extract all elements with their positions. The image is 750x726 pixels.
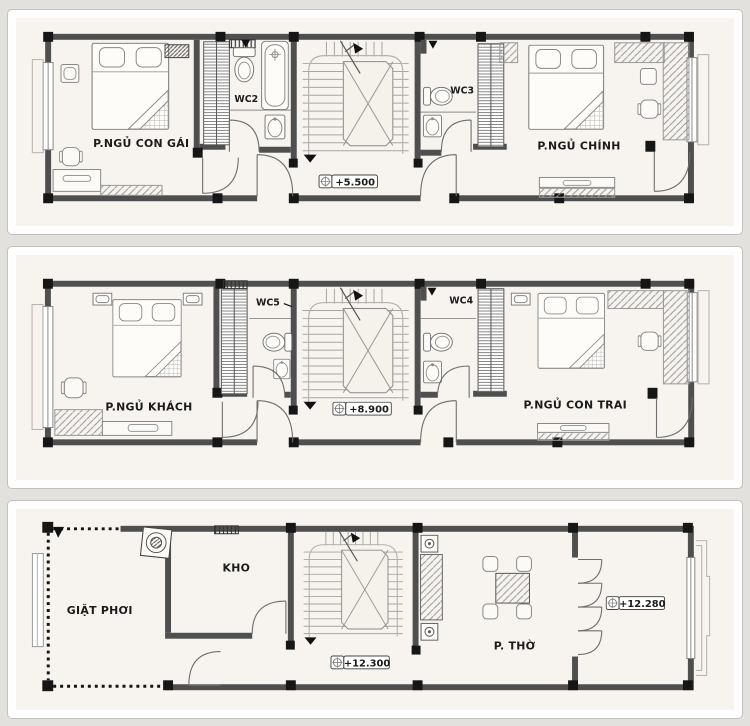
plan2-elevation-value: +8.900 xyxy=(349,405,389,416)
plan3-elevation-value: +12.300 xyxy=(344,658,391,669)
plan3-storage-label: KHO xyxy=(223,561,251,574)
plan1-elevation-marker: +5.500 xyxy=(319,175,377,188)
plan3-paper: GIẶT PHƠI KHO xyxy=(16,509,734,710)
plan1-paper: P.NGỦ CON GÁI xyxy=(16,18,734,226)
plan3-drawing: GIẶT PHƠI KHO xyxy=(16,509,734,710)
plan2-left-bedroom-label: P.NGỦ KHÁCH xyxy=(105,400,192,414)
plan2-paper: P.NGỦ KHÁCH WC5 xyxy=(16,255,734,480)
plan3-laundry-label: GIẶT PHƠI xyxy=(67,603,133,617)
plan2-elevation-marker: +8.900 xyxy=(333,402,391,415)
floor-plan-card-3: GIẶT PHƠI KHO xyxy=(7,500,743,719)
plan2-right-bedroom-label: P.NGỦ CON TRAI xyxy=(524,398,627,412)
floor-plans-page: P.NGỦ CON GÁI xyxy=(0,0,750,726)
plan3-worship-label: P. THỜ xyxy=(494,640,536,653)
plan1-wc3-label: WC3 xyxy=(450,85,474,96)
plan1-wc2-label: WC2 xyxy=(234,94,258,105)
floor-plan-card-2: P.NGỦ KHÁCH WC5 xyxy=(7,246,743,489)
plan1-elevation-value: +5.500 xyxy=(335,177,375,188)
plan1-left-bedroom-label: P.NGỦ CON GÁI xyxy=(93,136,189,150)
plan2-wc4-label: WC4 xyxy=(449,296,473,307)
plan2-wc5-label: WC5 xyxy=(256,298,280,309)
plan3-elevation-secondary-value: +12.280 xyxy=(619,599,666,610)
plan1-drawing: P.NGỦ CON GÁI xyxy=(16,18,734,226)
plan2-drawing: P.NGỦ KHÁCH WC5 xyxy=(16,255,734,480)
floor-plan-card-1: P.NGỦ CON GÁI xyxy=(7,9,743,235)
plan1-master-bedroom-label: P.NGỦ CHÍNH xyxy=(537,139,620,153)
